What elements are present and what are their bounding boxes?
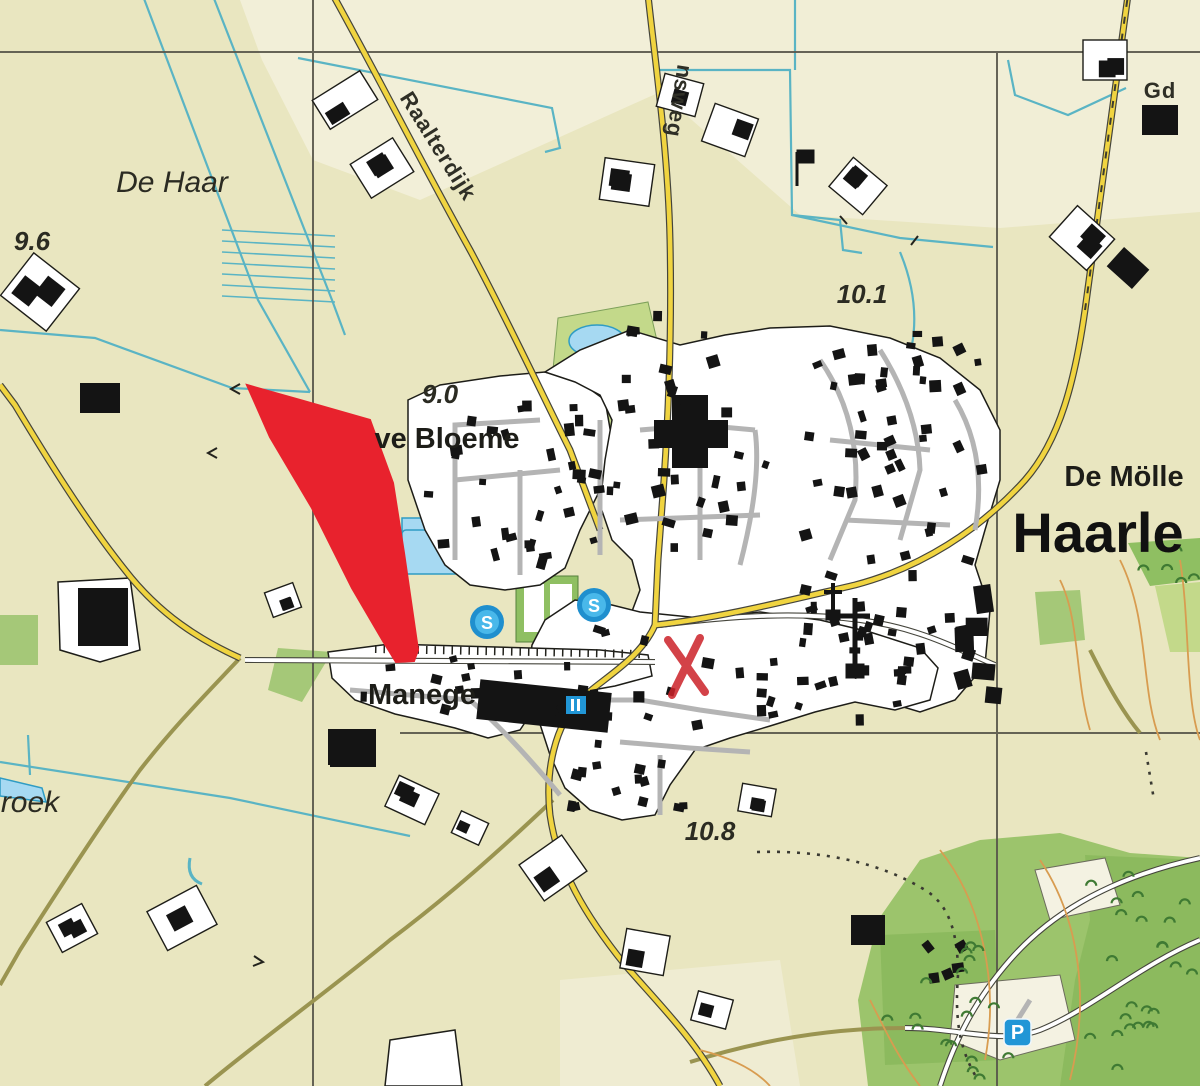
building — [903, 656, 914, 666]
parking-badge-letter: P — [1011, 1022, 1024, 1044]
sports-hall-icon-2: S — [577, 588, 611, 622]
building — [757, 705, 767, 717]
building — [564, 423, 575, 437]
farmstead — [1083, 40, 1127, 80]
label-de-haar: De Haar — [116, 166, 229, 199]
farmstead — [80, 383, 120, 413]
building — [867, 344, 878, 356]
map-canvas: S S P De Haar 9.6 Raalterdijk nsweg Gd 1… — [0, 0, 1200, 1086]
farmstead — [851, 915, 885, 945]
building — [697, 425, 707, 435]
building — [671, 543, 679, 552]
building — [913, 366, 920, 376]
building — [622, 375, 631, 383]
label-manege: Manege — [368, 679, 476, 711]
building — [926, 522, 936, 534]
building — [471, 516, 481, 527]
building — [921, 424, 932, 434]
farmstead — [328, 729, 376, 765]
building — [569, 404, 577, 411]
building — [607, 486, 614, 495]
building — [966, 618, 988, 636]
building — [976, 464, 988, 475]
building — [385, 664, 395, 672]
building — [919, 376, 926, 384]
farmstead — [620, 928, 670, 975]
building — [467, 663, 475, 670]
building — [514, 670, 522, 680]
building — [799, 638, 806, 648]
building — [633, 691, 644, 702]
transit-stop-icon — [566, 696, 586, 714]
building — [737, 481, 746, 491]
building — [726, 515, 738, 526]
building — [856, 714, 864, 725]
label-height-10-8: 10.8 — [685, 816, 736, 846]
building — [886, 415, 897, 425]
building — [770, 658, 778, 666]
building — [635, 774, 643, 783]
building — [577, 685, 588, 696]
building — [797, 677, 809, 686]
building — [653, 311, 662, 321]
building — [590, 689, 599, 696]
label-height-9-0: 9.0 — [422, 379, 459, 409]
label-de-molle: De Mölle — [1064, 461, 1183, 493]
building — [906, 342, 916, 349]
building — [437, 539, 449, 549]
farmstead — [738, 783, 776, 816]
label-haarle: Haarle — [1012, 501, 1183, 564]
building — [932, 336, 943, 347]
building — [657, 759, 666, 769]
building — [679, 802, 687, 809]
building — [594, 740, 601, 748]
label-bloeme: ve Bloeme — [374, 423, 519, 455]
building — [691, 719, 703, 730]
building — [658, 468, 671, 477]
building — [985, 686, 1003, 704]
topographic-map: S S P De Haar 9.6 Raalterdijk nsweg Gd 1… — [0, 0, 1200, 1086]
building — [971, 662, 995, 680]
building — [804, 431, 814, 441]
building — [721, 407, 732, 417]
building — [648, 439, 659, 449]
building — [593, 485, 605, 494]
building — [833, 486, 845, 498]
building — [916, 643, 926, 655]
sports-hall-icon-1: S — [470, 605, 504, 639]
building — [424, 491, 434, 498]
building — [913, 331, 923, 337]
building — [564, 662, 570, 671]
building — [627, 328, 637, 336]
building — [929, 380, 941, 393]
building — [894, 669, 905, 677]
building — [845, 448, 857, 458]
building — [848, 373, 861, 385]
building — [603, 712, 612, 721]
parking-icon: P — [1004, 1019, 1031, 1046]
building — [919, 435, 927, 443]
building — [803, 623, 813, 635]
label-gd: Gd — [1144, 78, 1177, 103]
building — [974, 358, 981, 366]
building — [855, 430, 867, 439]
building — [735, 667, 744, 678]
building — [757, 673, 768, 681]
building — [701, 331, 708, 339]
building — [908, 570, 916, 581]
building — [479, 479, 486, 486]
building — [945, 613, 955, 623]
building — [867, 554, 876, 564]
farmstead — [1142, 105, 1178, 135]
building — [880, 367, 888, 378]
label-height-9-6: 9.6 — [14, 226, 51, 256]
building — [592, 761, 601, 770]
building — [674, 404, 682, 412]
building — [625, 405, 636, 414]
building — [846, 486, 858, 498]
sports-badge-letter: S — [481, 613, 493, 633]
building — [896, 607, 907, 618]
building — [756, 688, 767, 698]
building — [575, 415, 583, 427]
sports-badge-letter: S — [588, 596, 600, 616]
building — [360, 692, 367, 702]
building — [613, 481, 620, 488]
building — [671, 474, 679, 484]
building — [887, 629, 896, 637]
building — [547, 694, 556, 702]
label-height-10-1: 10.1 — [837, 279, 888, 309]
building — [701, 657, 715, 669]
label-roek: roek — [1, 786, 61, 819]
farmstead — [599, 158, 654, 207]
building — [875, 378, 887, 388]
